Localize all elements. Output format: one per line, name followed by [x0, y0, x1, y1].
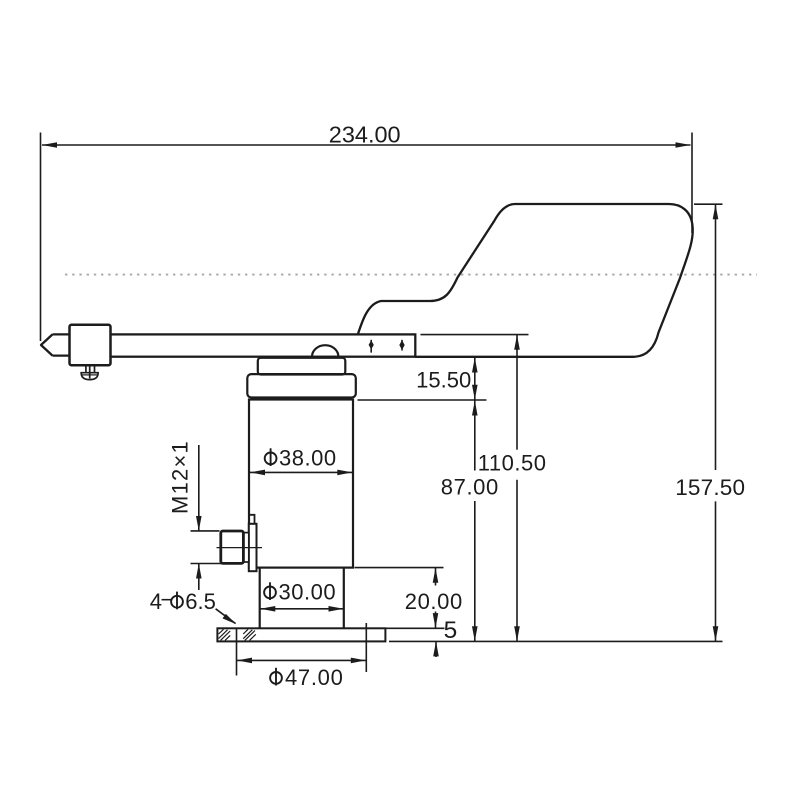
svg-text:87.00: 87.00: [441, 475, 499, 500]
svg-text:110.50: 110.50: [478, 450, 547, 475]
svg-text:47.00: 47.00: [285, 665, 344, 690]
svg-text:5: 5: [444, 617, 458, 644]
svg-text:234.00: 234.00: [329, 122, 401, 148]
svg-text:6.5: 6.5: [185, 589, 216, 614]
svg-text:15.50: 15.50: [416, 367, 471, 392]
svg-text:20.00: 20.00: [405, 589, 463, 614]
svg-text:M12×1: M12×1: [168, 440, 193, 514]
svg-text:30.00: 30.00: [279, 580, 337, 605]
svg-text:157.50: 157.50: [675, 475, 745, 500]
svg-text:38.00: 38.00: [279, 446, 337, 471]
